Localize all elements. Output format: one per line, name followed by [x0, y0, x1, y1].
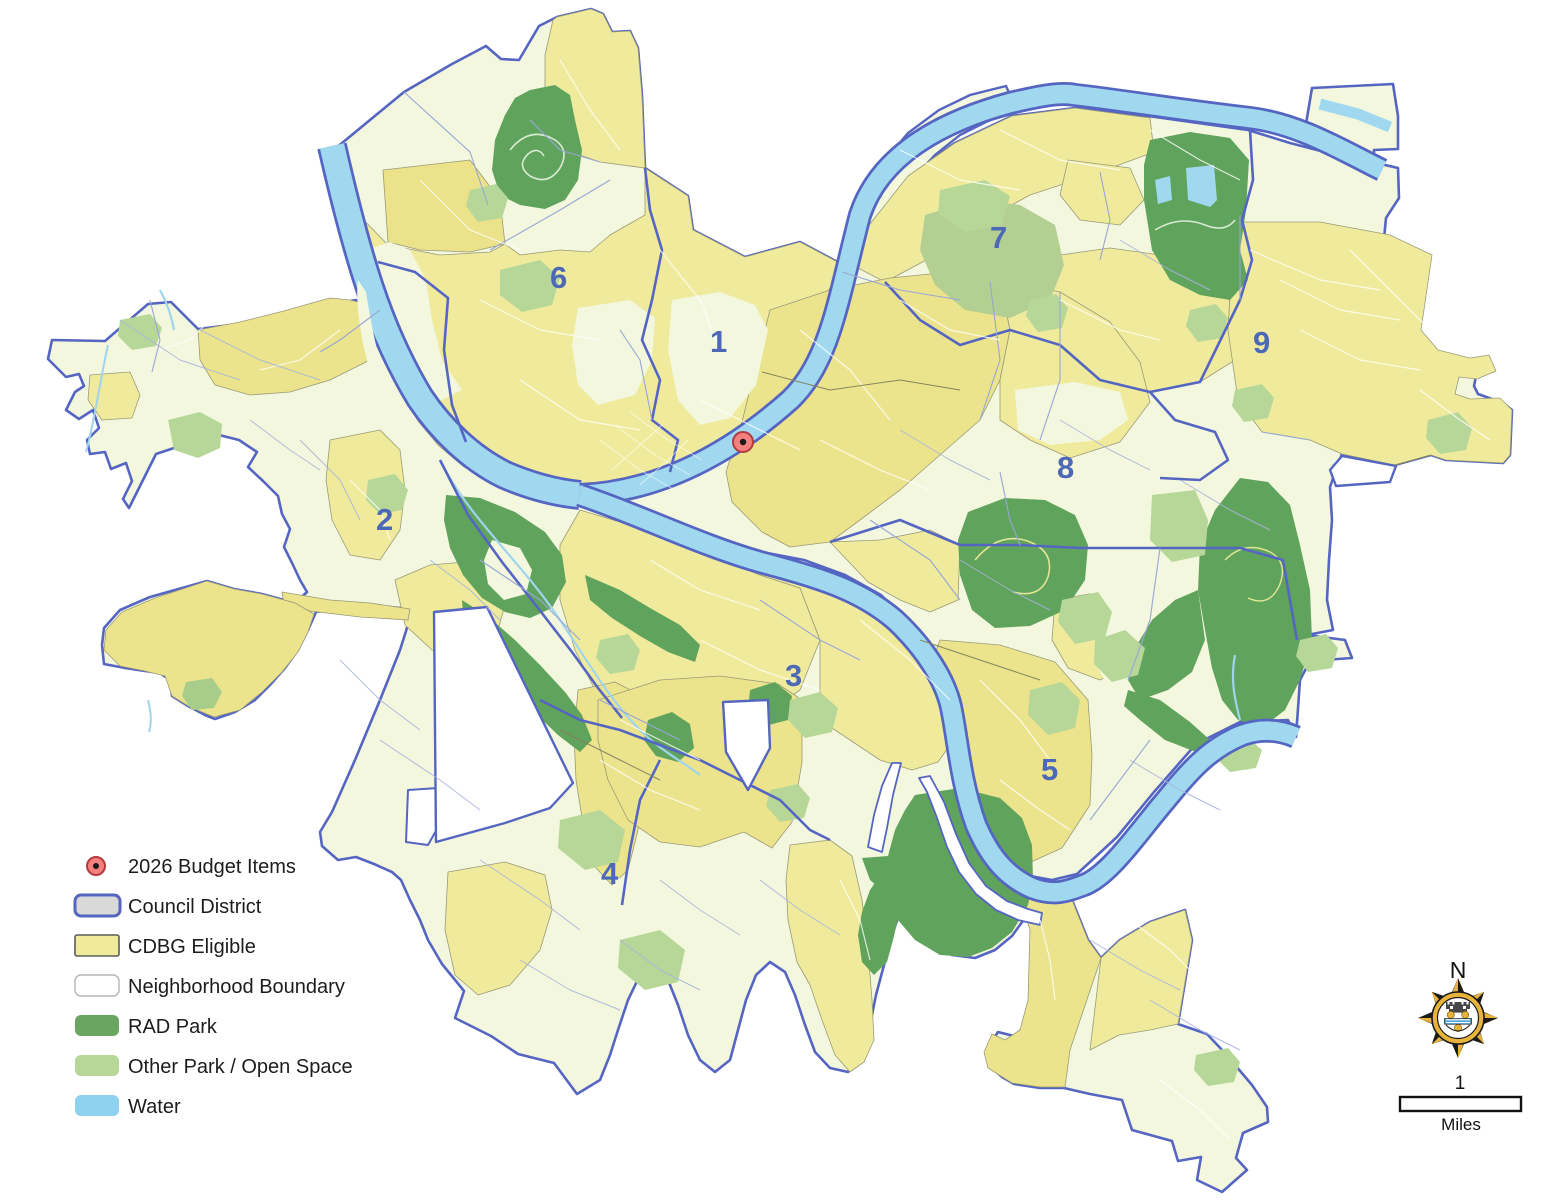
svg-text:RAD Park: RAD Park [128, 1016, 218, 1038]
svg-text:2: 2 [376, 502, 393, 537]
svg-text:6: 6 [550, 260, 567, 295]
svg-text:3: 3 [785, 658, 802, 693]
svg-text:1: 1 [710, 324, 727, 359]
svg-text:4: 4 [601, 856, 619, 891]
svg-text:9: 9 [1253, 325, 1270, 360]
svg-text:2026 Budget Items: 2026 Budget Items [128, 856, 296, 878]
svg-text:Council District: Council District [128, 896, 262, 918]
svg-text:1: 1 [1455, 1073, 1466, 1094]
svg-text:Other Park / Open Space: Other Park / Open Space [128, 1056, 353, 1078]
svg-text:8: 8 [1057, 450, 1074, 485]
svg-text:Neighborhood Boundary: Neighborhood Boundary [128, 976, 345, 998]
svg-text:5: 5 [1041, 752, 1058, 787]
svg-text:7: 7 [990, 220, 1007, 255]
svg-text:Water: Water [128, 1096, 181, 1118]
svg-text:Miles: Miles [1441, 1115, 1481, 1134]
svg-text:CDBG Eligible: CDBG Eligible [128, 936, 256, 958]
